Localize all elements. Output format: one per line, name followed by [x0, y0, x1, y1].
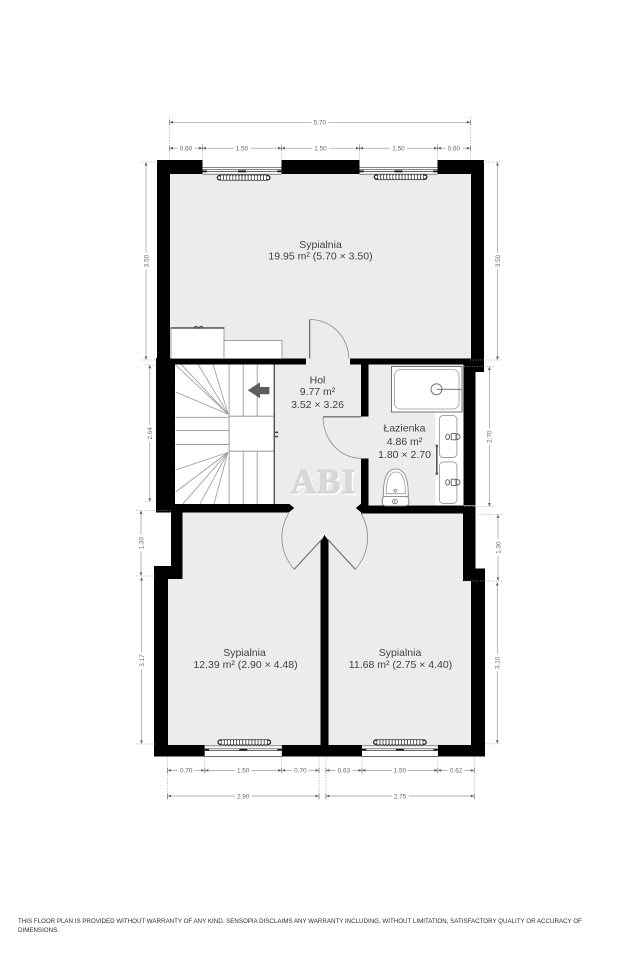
svg-text:1.50: 1.50 — [392, 146, 405, 153]
svg-text:3.17: 3.17 — [139, 654, 146, 667]
svg-text:3.52 × 3.26: 3.52 × 3.26 — [291, 399, 344, 411]
svg-text:0.60: 0.60 — [180, 146, 193, 153]
svg-text:2.64: 2.64 — [147, 427, 154, 440]
svg-text:Sypialnia: Sypialnia — [223, 647, 266, 659]
svg-text:3.50: 3.50 — [495, 254, 502, 267]
svg-text:1.50: 1.50 — [236, 146, 249, 153]
svg-text:Sypialnia: Sypialnia — [379, 647, 422, 659]
svg-text:2.70: 2.70 — [487, 430, 494, 443]
svg-text:1.80 × 2.70: 1.80 × 2.70 — [378, 449, 431, 461]
svg-text:9.77 m²: 9.77 m² — [300, 386, 336, 398]
svg-text:0.70: 0.70 — [294, 768, 307, 775]
svg-text:3.10: 3.10 — [495, 656, 502, 669]
svg-text:Łazienka: Łazienka — [383, 423, 425, 435]
svg-text:1.50: 1.50 — [394, 768, 407, 775]
svg-text:1.30: 1.30 — [138, 537, 145, 550]
svg-text:3.50: 3.50 — [143, 254, 150, 267]
svg-text:1.30: 1.30 — [495, 541, 502, 554]
svg-text:5.70: 5.70 — [314, 120, 327, 127]
svg-text:2.90: 2.90 — [237, 793, 250, 800]
svg-text:0.62: 0.62 — [450, 768, 463, 775]
svg-text:0.60: 0.60 — [448, 146, 461, 153]
svg-text:0.63: 0.63 — [338, 768, 351, 775]
svg-text:Sypialnia: Sypialnia — [299, 239, 342, 251]
svg-text:11.68 m² (2.75 × 4.40): 11.68 m² (2.75 × 4.40) — [349, 659, 452, 671]
svg-text:1.50: 1.50 — [314, 146, 327, 153]
svg-text:1.50: 1.50 — [237, 768, 250, 775]
svg-text:2.75: 2.75 — [394, 793, 407, 800]
svg-text:0.70: 0.70 — [180, 768, 193, 775]
svg-text:ABI: ABI — [291, 463, 357, 501]
svg-text:Hol: Hol — [310, 375, 326, 387]
svg-text:19.95 m² (5.70 × 3.50): 19.95 m² (5.70 × 3.50) — [268, 250, 372, 262]
svg-text:12.39 m² (2.90 × 4.48): 12.39 m² (2.90 × 4.48) — [193, 659, 297, 671]
svg-text:4.86 m²: 4.86 m² — [387, 436, 423, 448]
